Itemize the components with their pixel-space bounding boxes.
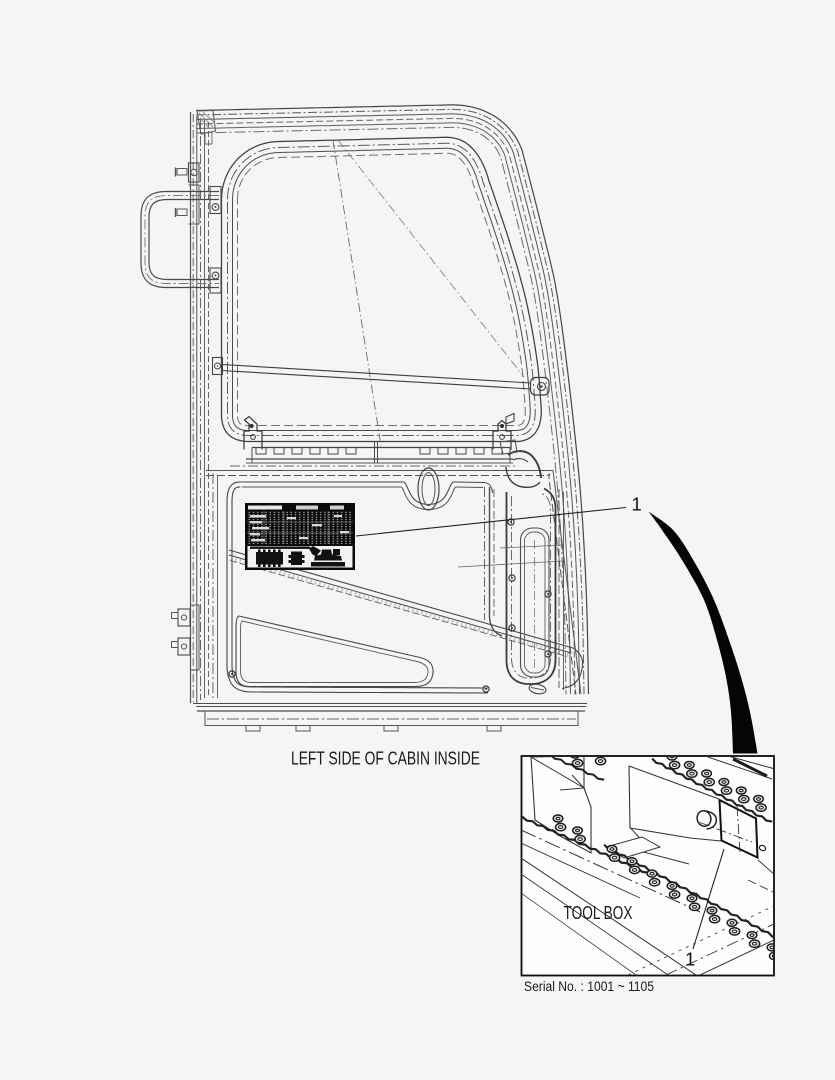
- svg-text:1: 1: [685, 949, 695, 970]
- svg-text:LEFT SIDE OF CABIN INSIDE: LEFT SIDE OF CABIN INSIDE: [291, 748, 480, 769]
- svg-text:TOOL BOX: TOOL BOX: [564, 903, 633, 923]
- svg-text:1: 1: [632, 494, 642, 515]
- svg-text:Serial No. : 1001 ~ 1105: Serial No. : 1001 ~ 1105: [524, 979, 654, 994]
